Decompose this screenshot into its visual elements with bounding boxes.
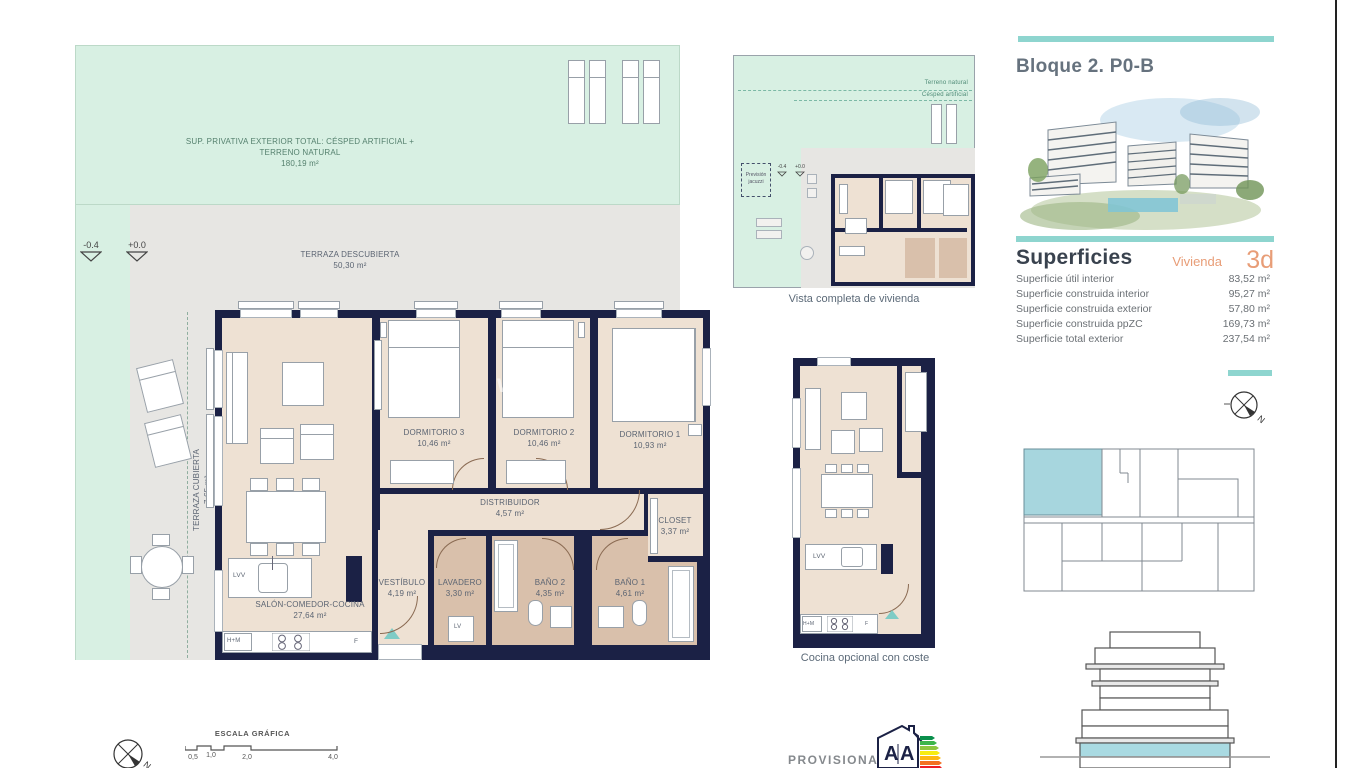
cocina-armchair — [859, 428, 883, 452]
cocina-tv-unit — [881, 544, 893, 574]
mini-sunbed — [756, 218, 782, 227]
distribuidor-label: DISTRIBUIDOR4,57 m² — [460, 498, 560, 520]
oven-microwave-label: H+M — [227, 638, 240, 644]
mini-sunbed — [946, 104, 957, 144]
compass-n-label: N — [141, 759, 152, 768]
vivienda-label: Vivienda — [1172, 254, 1222, 269]
sunbed — [643, 60, 660, 124]
bano2-label: BAÑO 24,35 m² — [520, 578, 580, 600]
chair — [130, 556, 142, 574]
mini-plan: Terreno natural Césped artificial Previs… — [733, 55, 975, 288]
window-opening — [300, 309, 338, 318]
superficie-row: Superficie construida interior95,27 m² — [1016, 288, 1274, 303]
lawn-strip-left — [75, 205, 130, 660]
tv-unit — [346, 556, 362, 602]
dorm1-label: DORMITORIO 110,93 m² — [600, 430, 700, 452]
mini-round-table — [800, 246, 814, 260]
bed — [612, 328, 696, 422]
wardrobe — [390, 460, 454, 484]
scale-tick: 1,0 — [206, 752, 216, 759]
provisional-label: PROVISIONAL — [788, 753, 887, 767]
watermark: s — [742, 368, 761, 399]
building-rendering — [1020, 90, 1272, 232]
lawn-label: SUP. PRIVATIVA EXTERIOR TOTAL: CÉSPED AR… — [185, 137, 415, 169]
dorm2-label: DORMITORIO 210,46 m² — [494, 428, 594, 450]
mini-sunbed — [931, 104, 942, 144]
cocina-plan-caption: Cocina opcional con coste — [790, 652, 940, 664]
window-sill — [414, 301, 458, 309]
cocina-chair — [825, 509, 837, 518]
mini-sunbed — [756, 230, 782, 239]
bano1-label: BAÑO 14,61 m² — [600, 578, 660, 600]
superficie-row: Superficie total exterior237,54 m² — [1016, 333, 1274, 348]
scale-tick: 2,0 — [242, 754, 252, 761]
entry-door-opening — [378, 644, 422, 660]
window-sill — [614, 301, 664, 309]
mini-terrain-line — [738, 90, 972, 91]
mini-bed — [943, 184, 969, 216]
mini-level-low: -0.4 — [774, 164, 790, 177]
cesped-artificial-label: Césped artificial — [922, 92, 968, 98]
superficies-top-bar — [1016, 236, 1274, 242]
chair — [182, 556, 194, 574]
cocina-plan: LVV H+M F — [793, 358, 935, 648]
fridge-label: F — [354, 638, 358, 645]
hob-icon — [272, 633, 310, 651]
energy-arrows — [920, 736, 942, 768]
energy-letter-2: A — [900, 743, 914, 765]
compass-n-label: N — [1255, 413, 1266, 425]
key-plan — [1022, 443, 1262, 601]
dining-chair — [250, 543, 268, 556]
chair — [152, 534, 170, 546]
energy-rating-logo: A A — [876, 722, 942, 768]
cocina-sofa — [805, 388, 821, 450]
mini-terrain-line — [794, 100, 972, 101]
washbasin — [550, 606, 572, 628]
level-triangle-icon — [80, 251, 102, 262]
dining-chair — [276, 478, 294, 491]
cocina-chair — [841, 509, 853, 518]
cocina-bed-partial — [905, 372, 927, 432]
terraza-descubierta-label: TERRAZA DESCUBIERTA 50,30 m² — [245, 250, 455, 272]
superficie-row: Superficie construida exterior57,80 m² — [1016, 303, 1274, 318]
chair — [152, 588, 170, 600]
mini-table — [845, 218, 867, 234]
mini-chair — [807, 188, 817, 198]
mini-chair — [807, 174, 817, 184]
window-sill — [238, 301, 294, 309]
balcony-door-opening — [214, 570, 223, 632]
window-opening — [501, 309, 541, 318]
cocina-oven-label: H+M — [803, 621, 814, 627]
cocina-armchair — [831, 430, 855, 454]
cocina-sink — [841, 547, 863, 567]
sunbed — [589, 60, 606, 124]
armchair — [300, 424, 334, 460]
dorm3-label: DORMITORIO 310,46 m² — [384, 428, 484, 450]
terreno-natural-label: Terreno natural — [925, 80, 968, 86]
cocina-chair — [841, 464, 853, 473]
window-sill — [206, 414, 214, 508]
terrace-boundary-dashed-line — [187, 312, 188, 658]
dining-chair — [250, 478, 268, 491]
sunbed — [622, 60, 639, 124]
balcony-door-opening — [214, 350, 223, 408]
window-opening — [240, 309, 292, 318]
superficie-row: Superficie útil interior83,52 m² — [1016, 273, 1274, 288]
cocina-coffee-table — [841, 392, 867, 420]
toilet — [528, 600, 543, 626]
mini-sofa — [839, 184, 848, 214]
cocina-hob-icon — [827, 616, 853, 632]
vivienda-value: 3d — [1246, 246, 1274, 275]
window-opening — [416, 309, 456, 318]
window-opening — [616, 309, 662, 318]
window-sill — [499, 301, 543, 309]
energy-letter-1: A — [884, 743, 898, 765]
mini-provision-box: Previsión jacuzzi — [741, 163, 771, 197]
closet-label: CLOSET3,37 m² — [645, 516, 705, 538]
window-opening — [702, 348, 711, 406]
scale-bar: 0,5 1,0 2,0 4,0 — [185, 740, 345, 762]
shower-tray — [668, 566, 694, 642]
cocina-dining-table — [821, 474, 873, 508]
dining-chair — [302, 543, 320, 556]
nightstand — [578, 322, 585, 338]
building-section — [1040, 628, 1270, 768]
level-triangle-icon — [126, 251, 148, 262]
north-compass-icon: N — [1224, 388, 1272, 428]
toilet — [632, 600, 647, 626]
superficies-heading: Superficies — [1016, 246, 1133, 269]
scale-title: ESCALA GRÁFICA — [170, 729, 335, 738]
sunbed — [568, 60, 585, 124]
window-sill — [206, 348, 214, 410]
nightstand — [380, 322, 387, 338]
mini-island — [839, 246, 865, 256]
mini-plan-caption: Vista completa de vivienda — [733, 293, 975, 305]
mini-level-zero: +0.0 — [792, 164, 808, 177]
watermark: www — [497, 368, 573, 399]
sheet-frame-line — [1335, 0, 1337, 768]
tall-cabinet — [374, 340, 382, 410]
balcony-door-opening — [214, 416, 223, 506]
bed — [388, 320, 460, 418]
wardrobe — [506, 460, 566, 484]
dining-chair — [276, 543, 294, 556]
level-marker-zero: +0.0 — [124, 240, 150, 262]
cocina-entry-arrow-icon — [885, 610, 899, 619]
plan-sheet: SUP. PRIVATIVA EXTERIOR TOTAL: CÉSPED AR… — [0, 0, 1366, 768]
superficies-header: Superficies Vivienda 3d — [1016, 246, 1274, 270]
tap-icon — [272, 556, 273, 570]
highlighted-floor — [1080, 743, 1230, 757]
coffee-table — [282, 362, 324, 406]
dining-chair — [302, 478, 320, 491]
shower-tray — [494, 540, 518, 612]
level-marker-low: -0.4 — [78, 240, 104, 262]
sofa — [226, 352, 248, 444]
scale-tick: 4,0 — [328, 754, 338, 761]
block-title: Bloque 2. P0-B — [1016, 56, 1154, 78]
window-sill — [298, 301, 340, 309]
cocina-fridge-label: F — [865, 621, 868, 627]
salon-label: SALÓN-COMEDOR-COCINA27,64 m² — [240, 600, 380, 622]
mini-bed — [885, 180, 913, 214]
dishwasher-label: LVV — [233, 572, 245, 579]
footer-compass-icon: N — [106, 736, 162, 768]
dining-table — [246, 491, 326, 543]
armchair — [260, 428, 294, 464]
lavadero-label: LAVADERO3,30 m² — [430, 578, 490, 600]
mini-unit — [831, 174, 975, 286]
superficie-row: Superficie construida ppZC169,73 m² — [1016, 318, 1274, 333]
round-table — [141, 546, 183, 588]
cocina-dishwasher-label: LVV — [813, 553, 825, 560]
vestibulo-label: VESTÍBULO4,19 m² — [372, 578, 432, 600]
sidebar-small-bar — [1228, 370, 1272, 376]
cocina-chair — [825, 464, 837, 473]
sink — [258, 563, 288, 593]
scale-tick: 0,5 — [188, 754, 198, 761]
washbasin — [598, 606, 624, 628]
highlighted-unit — [1024, 449, 1102, 515]
sidebar-top-bar — [1018, 36, 1274, 42]
cocina-chair — [857, 464, 869, 473]
cocina-chair — [857, 509, 869, 518]
washer-label: LV — [454, 624, 461, 630]
